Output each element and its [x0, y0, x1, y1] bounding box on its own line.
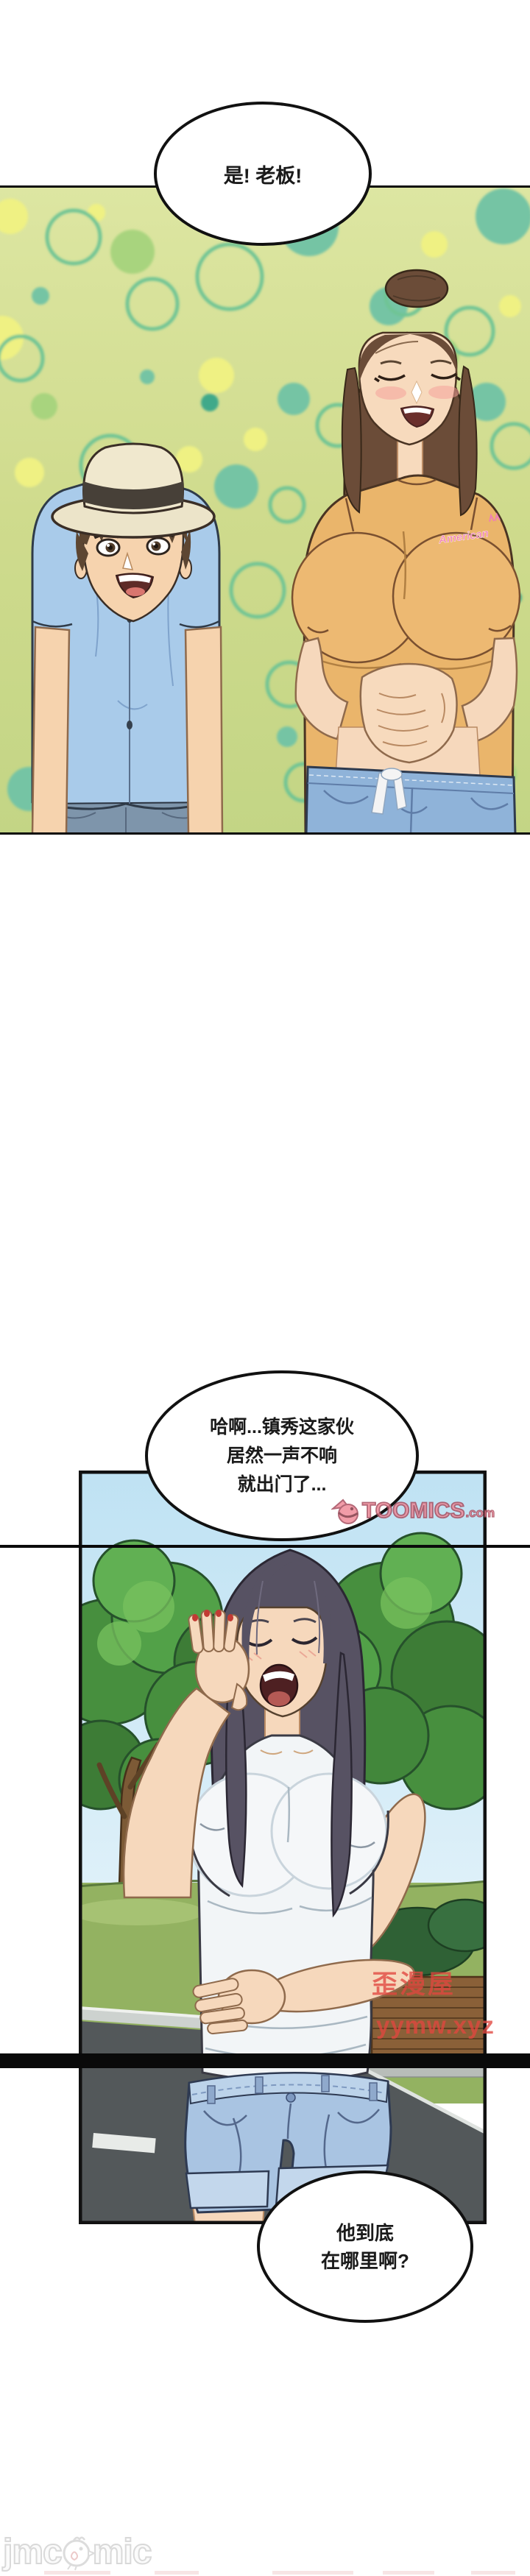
- speech-bubble-where: 他到底 在哪里啊?: [257, 2170, 473, 2323]
- toomics-domain-text: .com: [465, 1506, 495, 1521]
- jmcomic-text-prefix: jmc: [3, 2532, 62, 2572]
- toomics-brand-text: TOOMICS: [362, 1498, 464, 1524]
- panel2-art: [79, 1471, 487, 2224]
- man-figure: [32, 444, 222, 835]
- scan-residue: [272, 2571, 353, 2575]
- panel-seam-line: [0, 1545, 530, 1548]
- jmcomic-text-suffix: mic: [93, 2532, 152, 2572]
- comic-panel-street: [79, 1471, 487, 2224]
- bubble-text-line: 他到底: [336, 2219, 394, 2247]
- webtoon-page: American: [0, 0, 530, 2576]
- bubble-text: 是! 老板!: [224, 160, 302, 188]
- yymw-site-name: 歪漫屋: [372, 1971, 495, 1999]
- censor-bar: [0, 2053, 530, 2068]
- bird-icon: [60, 2533, 94, 2572]
- woman-jeans: [306, 767, 515, 835]
- bubble-text-line: 就出门了...: [238, 1471, 327, 1499]
- toomics-watermark: TOOMICS .com: [331, 1498, 495, 1525]
- bubble-text-line: 居然一声不响: [227, 1442, 337, 1471]
- panel1-art: American: [0, 185, 530, 835]
- jmcomic-watermark: jmc mic: [3, 2532, 151, 2572]
- scan-residue: [155, 2571, 199, 2575]
- bubble-text-line: 哈啊...镇秀这家伙: [210, 1413, 354, 1442]
- yymw-site-url: yymw.xyz: [376, 2012, 495, 2039]
- bubble-text-line: 在哪里啊?: [321, 2247, 409, 2275]
- yymw-watermark: 歪漫屋 yymw.xyz: [372, 1971, 495, 2039]
- scan-residue: [383, 2571, 434, 2575]
- toomics-mascot-icon: [331, 1498, 362, 1525]
- comic-panel-couple: American: [0, 185, 530, 835]
- scan-residue: [471, 2571, 515, 2575]
- speech-bubble-boss: 是! 老板!: [154, 102, 372, 246]
